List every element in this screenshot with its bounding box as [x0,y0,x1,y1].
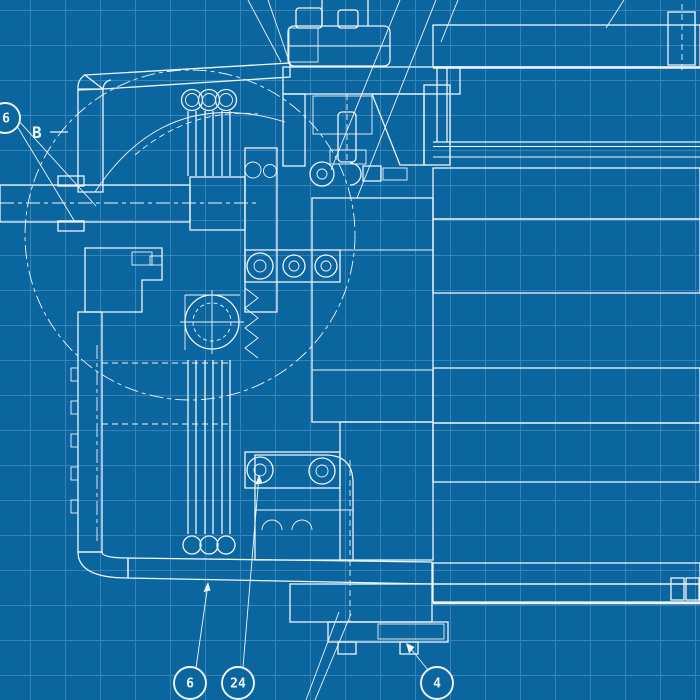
balloon-6-label: 6 [186,677,194,692]
balloon-6: 6 [174,667,206,699]
blueprint-canvas: 6 6 24 4 B [0,0,700,700]
balloon-left-edge: 6 [0,103,20,133]
detail-label-b-text: B [32,123,42,142]
balloon-4-label: 4 [433,677,441,692]
blueprint-drawing: 6 6 24 4 B [0,0,700,700]
balloon-left-edge-label: 6 [2,112,10,127]
balloon-24: 24 [222,667,254,699]
balloon-24-label: 24 [230,677,246,692]
balloon-4: 4 [421,667,453,699]
